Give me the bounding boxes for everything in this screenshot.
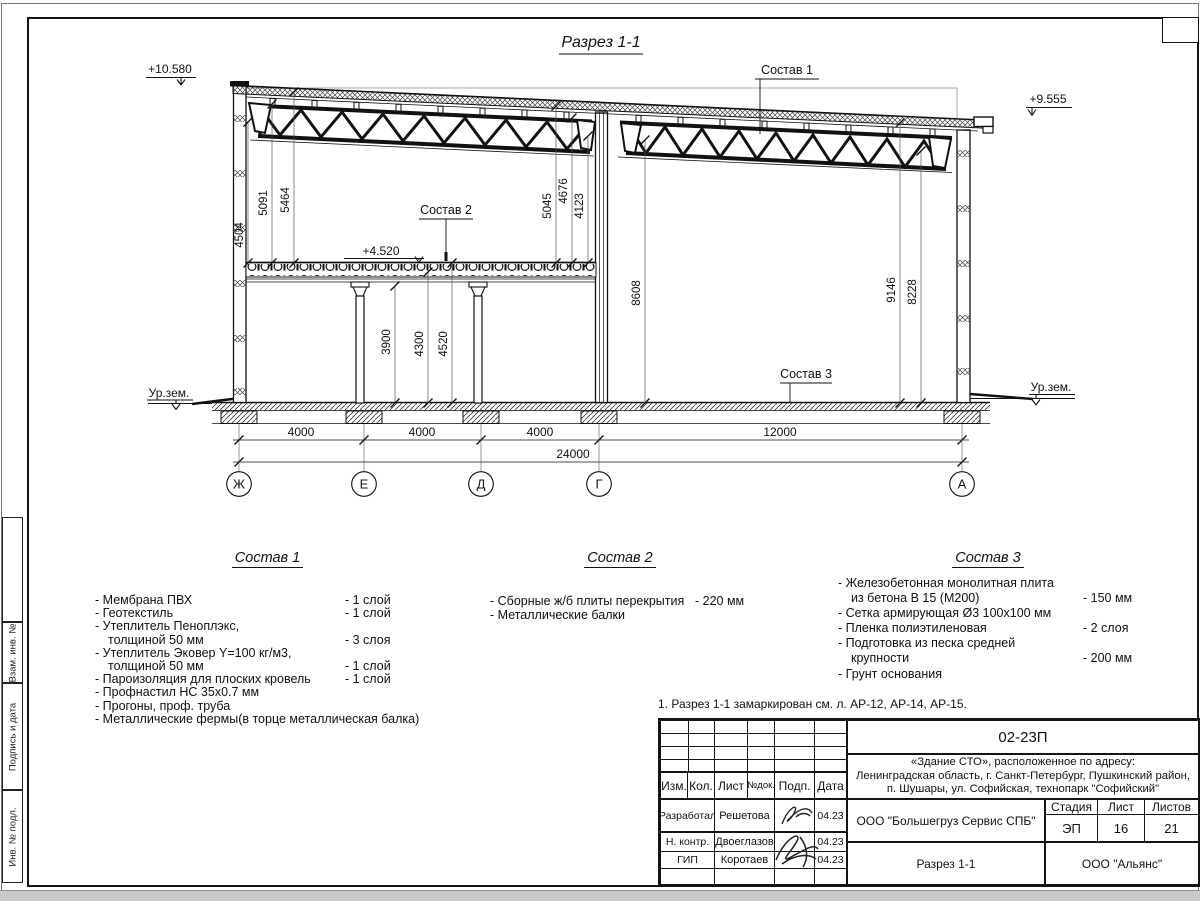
sheet-title: Разрез 1-1: [847, 842, 1045, 885]
list-item: - Железобетонная монолитная плита: [838, 576, 1138, 591]
role-razrabotal: Разработал: [660, 799, 715, 832]
level-top-right: +9.555: [1029, 92, 1066, 106]
col-ndok: №док.: [747, 772, 775, 799]
stamp-podpis-data: Подпись и дата: [2, 683, 23, 790]
sheets-label: Листов: [1144, 799, 1199, 815]
dim-4000-3: 4000: [527, 425, 554, 439]
list-item: - Сетка армирующая Ø3 100х100 мм: [838, 606, 1138, 621]
dim-4000-2: 4000: [409, 425, 436, 439]
callout-sostav1: Состав 1: [761, 63, 813, 77]
sostav1-list: Состав 1 - Мембрана ПВХ- 1 слой - Геотек…: [95, 550, 440, 726]
list-item: - Сборные ж/б плиты перекрытия- 220 мм: [490, 594, 750, 608]
sostav3-heading: Состав 3: [838, 550, 1138, 566]
dim-12000: 12000: [763, 425, 797, 439]
axis-bubbles: Ж Е Д Г А: [227, 472, 975, 497]
dim-8608: 8608: [631, 280, 643, 306]
name-korotaev: Коротаев: [714, 851, 775, 869]
drawing-title: Разрез 1-1: [561, 34, 640, 51]
stamp-vzam-inv: Взам. инв. №: [2, 622, 23, 683]
list-item: - Профнастил НС 35х0.7 мм: [95, 686, 440, 699]
dim-3900: 3900: [381, 329, 393, 355]
axis-d: Д: [477, 477, 486, 492]
col-kol: Кол.: [687, 772, 715, 799]
dim-4300: 4300: [414, 331, 426, 357]
dim-4504: 4504: [234, 222, 246, 248]
axis-e: Е: [360, 477, 369, 492]
stage-value: ЭП: [1045, 814, 1098, 842]
signature-2: [770, 828, 822, 872]
sostav3-list: Состав 3 - Железобетонная монолитная пли…: [838, 550, 1138, 682]
foundations: [221, 411, 980, 424]
callout-sostav2: Состав 2: [420, 203, 472, 217]
truss-2: [618, 123, 952, 173]
name-reshetova: Решетова: [714, 799, 775, 832]
dim-4520: 4520: [438, 331, 450, 357]
dim-5464: 5464: [280, 187, 292, 213]
stamp-inv-podl: Инв. № подл.: [2, 790, 23, 883]
axis-g: Г: [595, 477, 602, 492]
list-item: - Грунт основания: [838, 667, 1138, 682]
column-D: [469, 282, 487, 403]
org-name-2: ООО "Альянс": [1045, 842, 1199, 885]
col-data: Дата: [814, 772, 847, 799]
sostav2-list: Состав 2 - Сборные ж/б плиты перекрытия-…: [490, 550, 750, 622]
window-bottom-edge: [0, 890, 1200, 901]
middle-wall: [596, 112, 608, 403]
stage-label: Стадия: [1045, 799, 1098, 815]
project-address: «Здание СТО», расположенное по адресу: Л…: [847, 754, 1199, 799]
list-item: из бетона В 15 (М200)- 150 мм: [838, 591, 1138, 606]
dim-4000-1: 4000: [288, 425, 315, 439]
title-block: Изм. Кол. Лист №док. Подп. Дата Разработ…: [658, 718, 1200, 887]
level-top-left: +10.580: [148, 62, 192, 76]
section-drawing: Разрез 1-1: [0, 0, 1200, 520]
role-gip: ГИП: [660, 851, 715, 869]
callout-sostav3: Состав 3: [780, 367, 832, 381]
org-name-1: ООО "Большегруз Сервис СПБ": [847, 799, 1045, 842]
list-item: - Пленка полиэтиленовая- 2 слоя: [838, 621, 1138, 636]
sheet-label: Лист: [1097, 799, 1145, 815]
stamp-cell-empty: [2, 517, 23, 622]
column-E: [351, 282, 369, 403]
list-item: толщиной 50 мм- 3 слоя: [95, 634, 440, 647]
dim-9146: 9146: [886, 277, 898, 303]
dim-4123: 4123: [574, 193, 586, 219]
axis-zh: Ж: [233, 477, 245, 492]
bottom-dims: 4000 4000 4000 12000 24000: [233, 424, 969, 471]
col-list: Лист: [714, 772, 748, 799]
sostav1-heading: Состав 1: [95, 550, 440, 566]
sheets-total: 21: [1144, 814, 1199, 842]
ground-level-right: Ур.зем.: [1031, 380, 1072, 394]
list-item: крупности- 200 мм: [838, 651, 1138, 666]
right-wall: [957, 130, 970, 403]
floor-slab: [246, 263, 596, 283]
dim-4676: 4676: [558, 178, 570, 204]
ground-level-left: Ур.зем.: [149, 386, 190, 400]
list-item: - Металлические фермы(в торце металличес…: [95, 713, 440, 726]
role-nkontr: Н. контр.: [660, 832, 715, 852]
sostav2-heading: Состав 2: [490, 550, 750, 566]
sheet-number: 16: [1097, 814, 1145, 842]
list-item: - Прогоны, проф. труба: [95, 700, 440, 713]
list-item: - Металлические балки: [490, 608, 750, 622]
col-podp: Подп.: [774, 772, 815, 799]
dim-5091: 5091: [258, 190, 270, 216]
list-item: - Подготовка из песка средней: [838, 636, 1138, 651]
name-dvoeglazov: Двоеглазов: [714, 832, 775, 852]
dim-8228: 8228: [907, 279, 919, 305]
dim-24000: 24000: [556, 447, 590, 461]
note-text: 1. Разрез 1-1 замаркирован см. л. АР-12,…: [658, 697, 1108, 711]
level-floor: +4.520: [362, 244, 399, 258]
col-izm: Изм.: [660, 772, 688, 799]
list-item: - Утеплитель Пеноплэкс,: [95, 620, 440, 633]
project-code: 02-23П: [847, 720, 1199, 754]
axis-a: А: [958, 477, 967, 492]
dim-5045: 5045: [542, 193, 554, 219]
